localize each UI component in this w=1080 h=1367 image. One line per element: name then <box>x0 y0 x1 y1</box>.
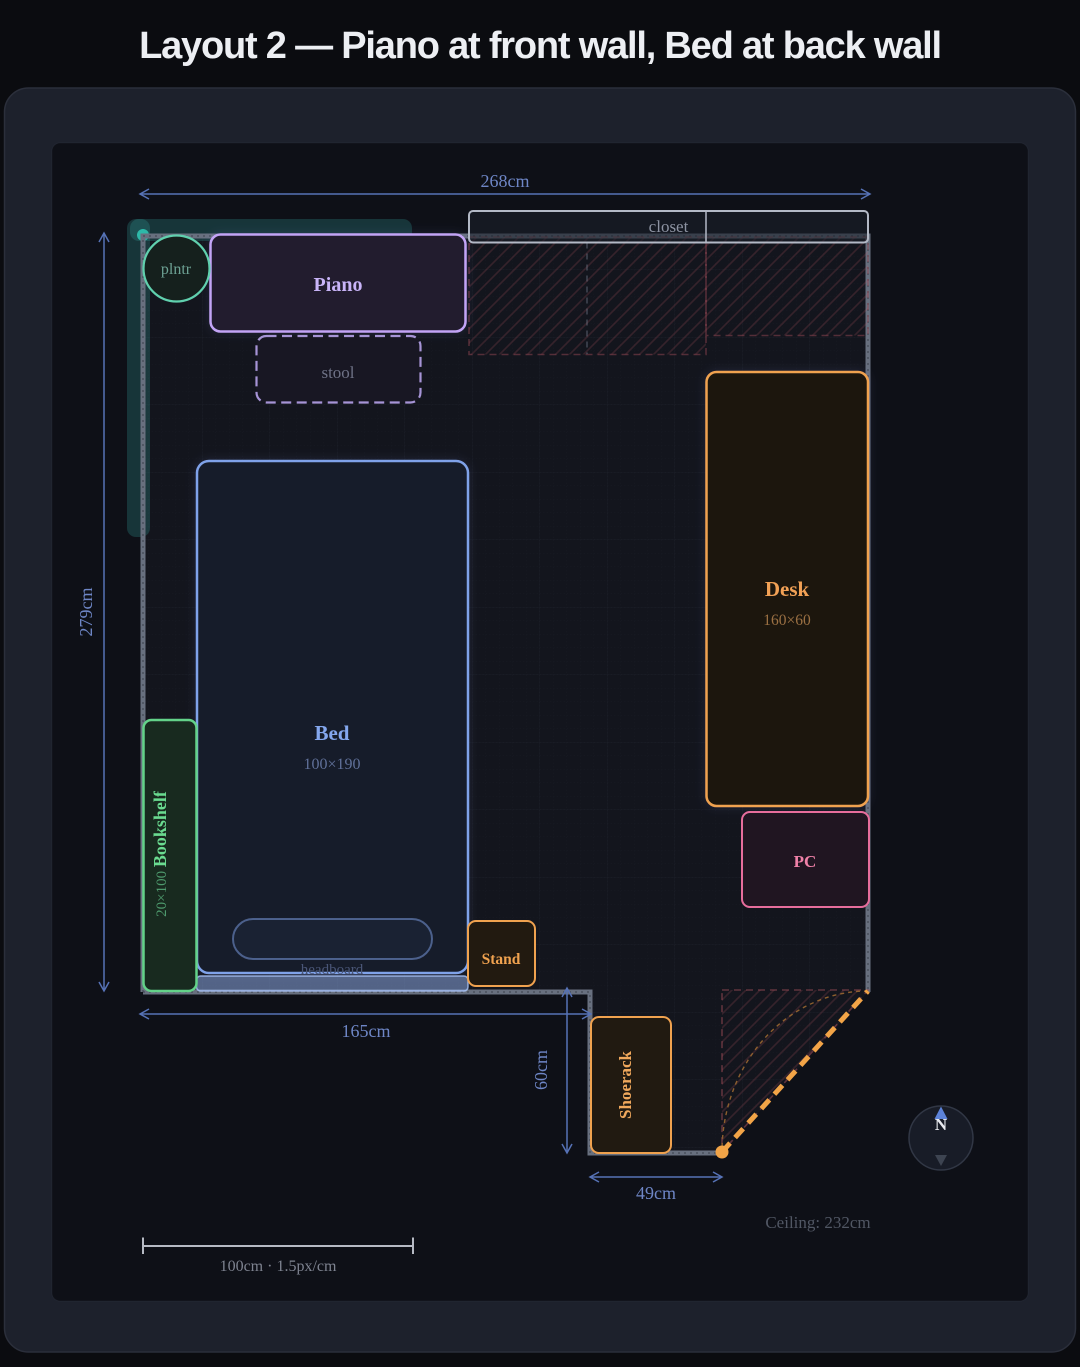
svg-text:PC: PC <box>794 852 817 871</box>
svg-text:100×190: 100×190 <box>303 756 360 773</box>
svg-text:plntr: plntr <box>161 261 192 278</box>
svg-text:N: N <box>935 1115 948 1134</box>
svg-text:Piano: Piano <box>314 274 363 296</box>
svg-text:stool: stool <box>321 363 354 382</box>
svg-text:49cm: 49cm <box>636 1183 676 1203</box>
svg-text:279cm: 279cm <box>76 588 96 637</box>
svg-text:160×60: 160×60 <box>763 612 811 629</box>
svg-text:100cm · 1.5px/cm: 100cm · 1.5px/cm <box>220 1258 337 1275</box>
svg-text:165cm: 165cm <box>342 1021 391 1041</box>
svg-text:Shoerack: Shoerack <box>616 1050 635 1119</box>
svg-text:closet: closet <box>649 217 689 236</box>
svg-text:268cm: 268cm <box>481 171 530 191</box>
svg-text:Ceiling: 232cm: Ceiling: 232cm <box>765 1213 870 1232</box>
svg-text:Desk: Desk <box>765 577 810 601</box>
svg-text:Stand: Stand <box>482 951 521 968</box>
svg-text:60cm: 60cm <box>531 1050 551 1090</box>
svg-text:Bed: Bed <box>314 721 349 745</box>
